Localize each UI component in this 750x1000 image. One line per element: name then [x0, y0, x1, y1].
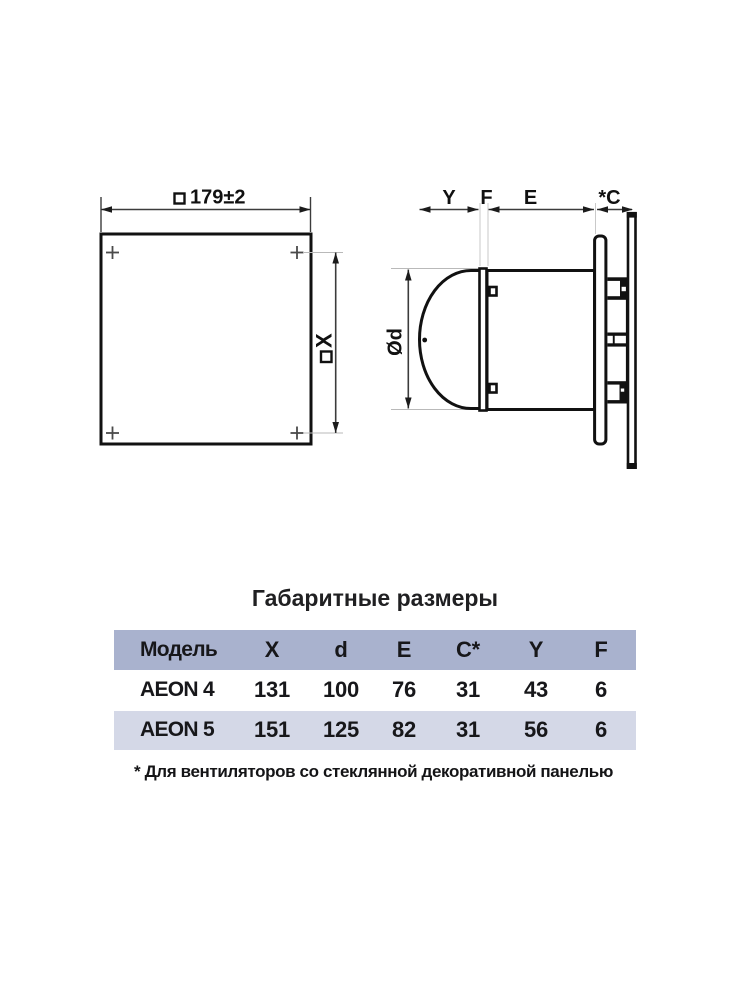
svg-text:*C: *C	[598, 187, 620, 209]
svg-text:Y: Y	[442, 187, 456, 209]
svg-text:179±2: 179±2	[190, 187, 245, 209]
svg-text:X: X	[312, 333, 337, 348]
svg-text:E: E	[524, 187, 537, 209]
svg-text:Ød: Ød	[385, 328, 407, 356]
svg-text:F: F	[480, 187, 492, 209]
